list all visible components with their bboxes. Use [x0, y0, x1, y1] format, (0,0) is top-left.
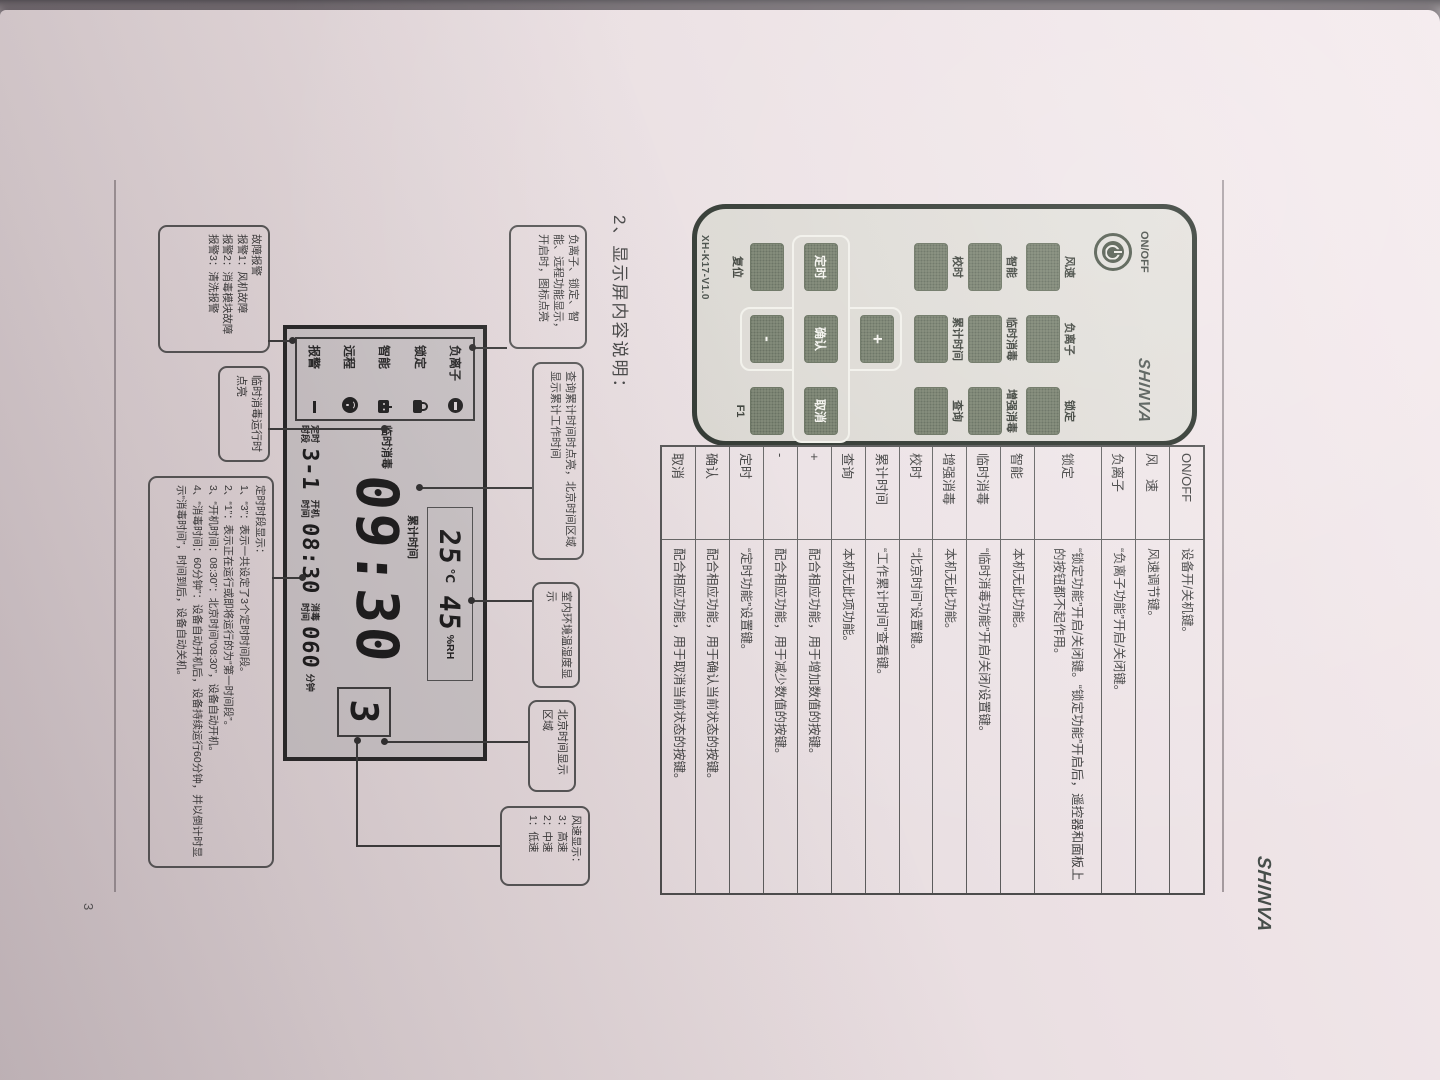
- alarm-dash-icon: [313, 401, 316, 413]
- callout-line: 4、“消毒时间：60分钟”：设备自动开机后，设备持续运行60分钟，并以倒计时显示…: [173, 485, 205, 859]
- key-desc: “负离子功能”开启/关闭键。: [1102, 540, 1135, 893]
- remote-model: XH-K17-V1.0: [699, 235, 710, 300]
- callout-line: 2：中速: [540, 815, 554, 877]
- callout-line: 3：高速: [554, 815, 568, 877]
- lock-icon: [413, 400, 428, 413]
- timer-period-value: 3-1: [298, 447, 323, 491]
- connector-dot: [416, 484, 423, 491]
- query-key-label: 查询: [950, 379, 966, 443]
- connector-line: [472, 600, 532, 602]
- key-desc: 配合相应功能，用于减少数值的按键。: [764, 540, 797, 893]
- key-name: 查询: [832, 447, 865, 540]
- table-row: 确认配合相应功能，用于确认当前状态的按键。: [695, 447, 729, 893]
- fan-speed-value: 3: [342, 699, 386, 726]
- key-desc: 风速调节键。: [1136, 540, 1169, 893]
- query-button[interactable]: [914, 387, 948, 435]
- table-row: -配合相应功能，用于减少数值的按键。: [763, 447, 797, 893]
- power-on-time-label: 开机 时间: [300, 500, 321, 518]
- manual-page: SHINVA 3 ON/OFF SHINVA 风速 负离子 锁定 智能 临时消毒…: [0, 0, 1440, 1080]
- photo-of-manual-page: SHINVA 3 ON/OFF SHINVA 风速 负离子 锁定 智能 临时消毒…: [0, 0, 1440, 1080]
- humidity-value: 45: [434, 594, 467, 632]
- time-value: 09:30: [343, 473, 411, 667]
- key-name: 智能: [1001, 447, 1034, 540]
- table-row: 智能本机无此功能。: [1000, 447, 1034, 893]
- beijing-time-display: 09:30: [343, 475, 411, 665]
- callout-line: 1、“3”：表示一共设定了3个定时时间段。: [236, 485, 252, 859]
- key-desc: “北京时间”设置键。: [900, 540, 933, 893]
- lcd-bottom-strip: 定时 时段 3-1 开机 时间 08:30 消毒 时间 060 分钟: [289, 425, 331, 751]
- key-function-table: ON/OFF设备开/关机键。 风 速风速调节键。 负离子“负离子功能”开启/关闭…: [660, 445, 1205, 895]
- connector-line: [268, 428, 384, 430]
- key-name: ON/OFF: [1170, 447, 1203, 540]
- humidity-unit: %RH: [444, 635, 456, 660]
- disinfect-time-label: 消毒 时间: [300, 603, 321, 621]
- connector-line: [272, 577, 302, 579]
- ion-icon: [448, 398, 463, 413]
- key-name: 取消: [662, 447, 695, 540]
- key-name: 负离子: [1102, 447, 1135, 540]
- minutes-label: 分钟: [305, 674, 315, 692]
- remote-brand-logo: SHINVA: [1134, 357, 1152, 424]
- fan-speed-button[interactable]: [1026, 243, 1060, 291]
- f1-label: F1: [734, 379, 746, 443]
- status-label: 报警: [306, 345, 323, 369]
- key-name: 临时消毒: [967, 447, 1000, 540]
- smart-button[interactable]: [968, 243, 1002, 291]
- label-line: 开机: [310, 500, 320, 518]
- status-label: 远程: [341, 345, 358, 369]
- footer-rule: [114, 180, 116, 892]
- boost-disinfect-button[interactable]: [968, 387, 1002, 435]
- key-desc: 设备开/关机键。: [1170, 540, 1203, 893]
- plus-button[interactable]: +: [860, 315, 894, 363]
- table-row: 累计时间“工作累计时间”查看键。: [865, 447, 899, 893]
- connector-line: [356, 845, 500, 847]
- minus-button[interactable]: -: [750, 315, 784, 363]
- anion-button[interactable]: [1026, 315, 1060, 363]
- callout-line: 报警1：风机故障: [234, 234, 248, 344]
- f1-button[interactable]: [750, 387, 784, 435]
- table-row: 增强消毒本机无此功能。: [933, 447, 967, 893]
- reset-button[interactable]: [750, 243, 784, 291]
- callout-status-icons: 负离子、锁定、智能、远程功能显示，开启时，图标点亮: [509, 225, 587, 349]
- connector-dot: [299, 574, 306, 581]
- power-icon: [1102, 241, 1124, 263]
- header-rule: [1222, 180, 1224, 892]
- key-desc: 配合相应功能，用于取消当前状态的按键。: [662, 540, 695, 893]
- status-label: 锁定: [412, 345, 429, 369]
- callout-temp-humidity: 室内环境温湿度显示: [532, 582, 580, 688]
- connector-dot: [468, 597, 475, 604]
- power-button[interactable]: [1094, 233, 1132, 271]
- lcd-status-column: 负离子 锁定 智能 远程 报警: [295, 337, 475, 421]
- remote-control: ON/OFF SHINVA 风速 负离子 锁定 智能 临时消毒 增强消毒 校时 …: [692, 204, 1197, 446]
- status-label: 智能: [377, 345, 394, 369]
- key-name: 风 速: [1136, 447, 1169, 540]
- section-title: 2、显示屏内容说明：: [609, 215, 634, 397]
- key-name: 校时: [900, 447, 933, 540]
- power-on-time-value: 08:30: [298, 522, 323, 595]
- boost-disinfect-key-label: 增强消毒: [1004, 379, 1020, 443]
- key-name: +: [798, 447, 831, 540]
- callout-line: 定时时段显示：: [251, 485, 267, 859]
- page-number: 3: [81, 903, 96, 910]
- wifi-icon: [342, 397, 358, 413]
- temperature-value: 25: [434, 528, 467, 566]
- lcd-display-diagram: 负离子 锁定 智能 远程 报警 25 ℃ 45 %RH 累计时间 临时消毒 09…: [283, 325, 487, 761]
- header-brand-logo: SHINVA: [1252, 855, 1274, 934]
- fan-speed-display: 3: [337, 687, 391, 737]
- cumulative-button[interactable]: [914, 315, 948, 363]
- key-desc: 本机无此功能。: [1001, 540, 1034, 893]
- label-line: 时间: [300, 603, 310, 621]
- smart-key-label: 智能: [1004, 235, 1020, 299]
- callout-line: 报警2：消毒模块故障: [220, 234, 234, 344]
- time-set-key-label: 校时: [950, 235, 966, 299]
- key-desc: “锁定功能”开启/关闭键。“锁定功能”开启后，遥控器和面板上的按钮都不起作用。: [1035, 540, 1101, 893]
- label-line: 消毒: [310, 603, 320, 621]
- temporary-disinfect-indicator: 临时消毒: [379, 425, 395, 469]
- connector-line: [384, 741, 528, 743]
- callout-line: 2、“1”：表示正在运行或即将运行的为“第一时间段”。: [220, 485, 236, 859]
- key-desc: “定时功能”设置键。: [730, 540, 763, 893]
- connector-line: [473, 347, 507, 349]
- key-desc: 本机无此项功能。: [832, 540, 865, 893]
- fan-speed-key-label: 风速: [1062, 235, 1078, 299]
- disinfect-time-value: 060: [298, 625, 323, 669]
- callout-fan-display: 风速显示： 3：高速 2：中速 1：低速: [500, 806, 590, 886]
- table-row: 校时“北京时间”设置键。: [899, 447, 933, 893]
- cumulative-key-label: 累计时间: [950, 307, 966, 371]
- callout-beijing-time: 北京时间显示区域: [528, 700, 576, 792]
- status-item: 远程: [332, 339, 367, 419]
- cancel-button[interactable]: 取消: [804, 387, 838, 435]
- connector-dot: [289, 337, 296, 344]
- status-item: 报警: [297, 339, 332, 419]
- smart-icon: [378, 400, 389, 413]
- table-row: ON/OFF设备开/关机键。: [1169, 447, 1203, 893]
- table-row: 临时消毒“临时消毒功能”开启/关闭/设置键。: [966, 447, 1000, 893]
- status-item: 锁定: [403, 339, 438, 419]
- callout-temporary-disinfect: 临时消毒运行时点亮: [218, 366, 270, 462]
- key-desc: 配合相应功能，用于确认当前状态的按键。: [696, 540, 729, 893]
- status-item: 智能: [367, 339, 402, 419]
- callout-cumulative-time: 查询累计时间时点亮，北京时间区域显示累计工作时间: [532, 362, 584, 560]
- key-name: 确认: [696, 447, 729, 540]
- callout-line: 故障报警: [249, 234, 263, 344]
- timer-button[interactable]: 定时: [804, 243, 838, 291]
- status-label: 负离子: [447, 345, 464, 381]
- key-desc: “临时消毒功能”开启/关闭/设置键。: [967, 540, 1000, 893]
- table-row: 锁定“锁定功能”开启/关闭键。“锁定功能”开启后，遥控器和面板上的按钮都不起作用…: [1034, 447, 1101, 893]
- temp-disinfect-key-label: 临时消毒: [1004, 307, 1020, 371]
- onoff-label: ON/OFF: [1138, 231, 1150, 273]
- callout-line: 风速显示：: [569, 815, 583, 877]
- callout-line: 3、“开机时间：08:30”：北京时间“08:30”，设备自动开机。: [204, 485, 220, 859]
- callout-alarm: 故障报警 报警1：风机故障 报警2：消毒模块故障 报警3：清洗报警: [158, 225, 270, 353]
- key-name: -: [764, 447, 797, 540]
- table-row: 取消配合相应功能，用于取消当前状态的按键。: [662, 447, 695, 893]
- connector-dot: [354, 737, 361, 744]
- key-name: 定时: [730, 447, 763, 540]
- callout-line: 报警3：清洗报警: [205, 234, 219, 344]
- confirm-button[interactable]: 确认: [804, 315, 838, 363]
- lock-key-label: 锁定: [1062, 379, 1078, 443]
- temperature-unit: ℃: [443, 568, 457, 583]
- temp-disinfect-button[interactable]: [968, 315, 1002, 363]
- table-row: 查询本机无此项功能。: [831, 447, 865, 893]
- connector-line: [420, 487, 532, 489]
- table-row: 风 速风速调节键。: [1135, 447, 1169, 893]
- label-line: 时间: [300, 500, 310, 518]
- status-item: 负离子: [438, 339, 473, 419]
- connector-dot: [381, 425, 388, 432]
- connector-line: [356, 742, 358, 847]
- temp-humidity-display: 25 ℃ 45 %RH: [427, 507, 473, 681]
- table-row: 定时“定时功能”设置键。: [729, 447, 763, 893]
- anion-key-label: 负离子: [1062, 307, 1078, 371]
- table-row: +配合相应功能，用于增加数值的按键。: [797, 447, 831, 893]
- key-desc: “工作累计时间”查看键。: [866, 540, 899, 893]
- connector-dot: [469, 344, 476, 351]
- key-name: 累计时间: [866, 447, 899, 540]
- key-name: 锁定: [1035, 447, 1101, 540]
- callout-timer-period: 定时时段显示： 1、“3”：表示一共设定了3个定时时间段。 2、“1”：表示正在…: [148, 476, 274, 868]
- key-name: 增强消毒: [934, 447, 967, 540]
- callout-line: 1：低速: [525, 815, 539, 877]
- lock-button[interactable]: [1026, 387, 1060, 435]
- key-desc: 本机无此功能。: [934, 540, 967, 893]
- reset-label: 复位: [730, 235, 746, 299]
- connector-dot: [381, 738, 388, 745]
- key-desc: 配合相应功能，用于增加数值的按键。: [798, 540, 831, 893]
- table-row: 负离子“负离子功能”开启/关闭键。: [1101, 447, 1135, 893]
- time-set-button[interactable]: [914, 243, 948, 291]
